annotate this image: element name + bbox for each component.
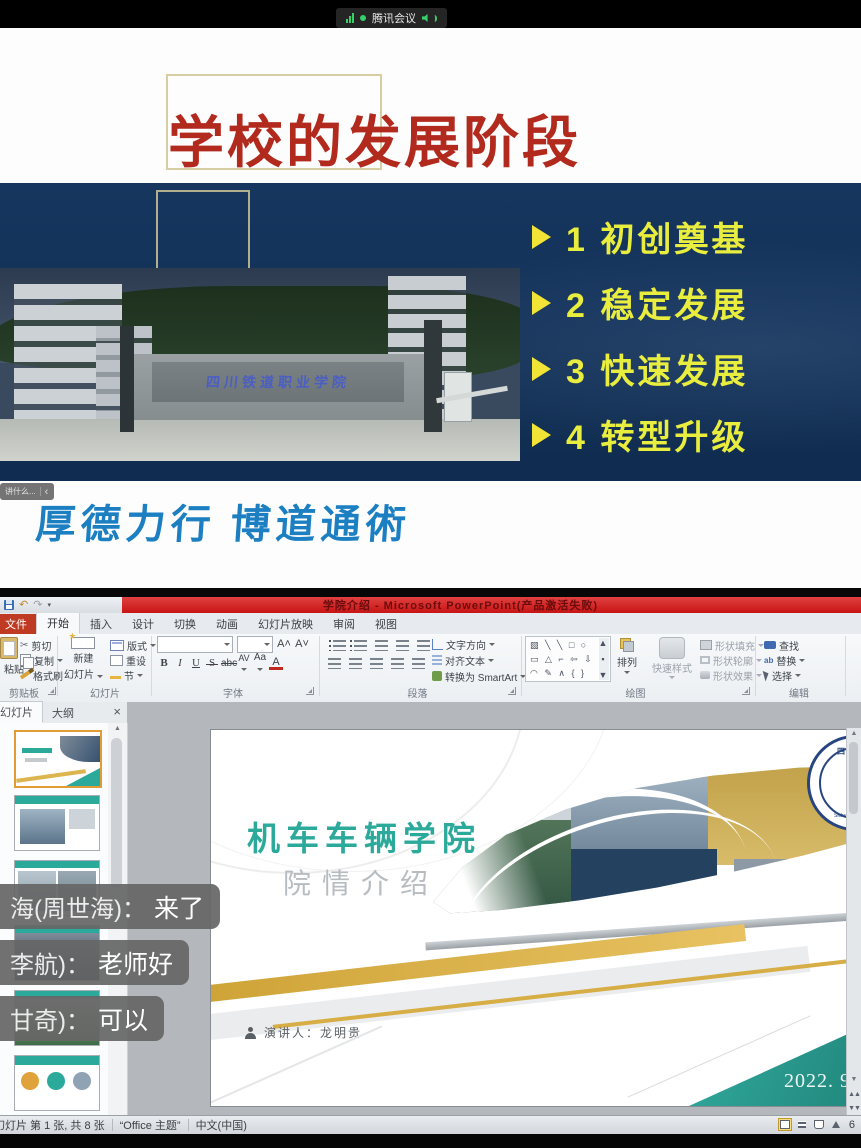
tab-file[interactable]: 文件 — [0, 614, 36, 634]
shrink-font-button[interactable]: A˅ — [295, 638, 309, 650]
line-spacing-button[interactable] — [417, 640, 430, 651]
close-pane-button[interactable]: × — [113, 705, 121, 718]
align-text-button[interactable]: 对齐文本 — [432, 653, 494, 667]
scroll-up-icon[interactable]: ▲ — [108, 725, 127, 732]
campus-gate-photo: 四川铁道职业学院 — [0, 268, 520, 461]
undo-button[interactable]: ↶ — [19, 600, 28, 610]
meeting-app-name: 腾讯会议 — [372, 10, 416, 26]
school-motto: 厚德力行 博道通術 — [34, 492, 413, 550]
group-label-editing: 编辑 — [755, 685, 843, 700]
copy-icon — [20, 654, 31, 666]
scroll-up-icon[interactable]: ▲ — [847, 730, 861, 737]
customize-qat-dropdown[interactable]: ▾ — [47, 601, 51, 609]
shape-effects-icon — [700, 671, 710, 679]
previous-slide-button[interactable]: ▲▲ — [847, 1092, 861, 1097]
shared-slide-title: 学校的发展阶段 — [168, 98, 581, 179]
next-slide-button[interactable]: ▼▼ — [847, 1106, 861, 1111]
shape-fill-icon — [700, 640, 712, 650]
gate-sign: 四川铁道职业学院 — [152, 362, 404, 402]
shapes-gallery-scrollbar[interactable]: ▲▪▼ — [599, 638, 609, 680]
shape-effects-button[interactable]: 形状效果 — [700, 668, 762, 682]
zoom-level[interactable]: 6 — [849, 1119, 855, 1131]
quick-styles-button[interactable]: 快速样式 — [652, 637, 692, 681]
tab-design[interactable]: 设计 — [122, 614, 164, 634]
text-direction-icon — [432, 639, 443, 650]
tab-insert[interactable]: 插入 — [80, 614, 122, 634]
collapsed-caption-badge[interactable]: 讲什么... ‹ — [0, 483, 54, 500]
save-button[interactable] — [4, 600, 14, 610]
window-title-bar[interactable]: 学院介绍 - Microsoft PowerPoint(产品激活失败) — [60, 597, 861, 613]
triangle-bullet-icon — [532, 225, 551, 249]
bullets-button[interactable] — [333, 640, 346, 651]
align-left-button[interactable] — [328, 658, 341, 669]
find-button[interactable]: 查找 — [764, 638, 799, 652]
group-label-font: 字体 — [153, 685, 313, 700]
scroll-down-icon[interactable]: ▼ — [847, 1076, 861, 1083]
chat-message-3: 甘奇)： 可以 — [0, 996, 164, 1041]
group-label-drawing: 绘图 — [523, 685, 748, 700]
grow-font-button[interactable]: A˄ — [277, 638, 291, 650]
align-center-button[interactable] — [349, 658, 362, 669]
text-shadow-button[interactable]: S — [205, 657, 219, 669]
tab-slideshow[interactable]: 幻灯片放映 — [248, 614, 323, 634]
bullet-item: 4 转型升级 — [532, 410, 748, 459]
format-painter-button[interactable]: 格式刷 — [20, 668, 63, 682]
tab-transitions[interactable]: 切换 — [164, 614, 206, 634]
slide-thumbnail-2[interactable] — [14, 795, 100, 851]
increase-indent-button[interactable] — [396, 640, 409, 651]
slide-count-status: 幻灯片 第 1 张, 共 8 张 — [0, 1117, 105, 1133]
slide-canvas[interactable]: 四川铁道 1952 Sichuan Railway C 机车车辆学院 院情介绍 … — [211, 730, 861, 1106]
ribbon-tab-bar: 文件 开始 插入 设计 切换 动画 幻灯片放映 审阅 视图 — [0, 613, 861, 635]
quick-styles-icon — [659, 637, 685, 659]
stage-bullet-list: 1 初创奠基 2 稳定发展 3 快速发展 4 转型升级 — [532, 212, 748, 459]
status-bar: 幻灯片 第 1 张, 共 8 张 “Office 主题” 中文(中国) 6 — [0, 1115, 861, 1134]
italic-button[interactable]: I — [173, 657, 187, 669]
slide-thumbnail-6[interactable] — [14, 1055, 100, 1111]
smartart-button[interactable]: 转换为 SmartArt — [432, 669, 526, 683]
quick-access-toolbar: ↶ ↷ ▾ — [0, 597, 122, 613]
reading-view-button[interactable] — [812, 1118, 826, 1131]
character-spacing-button[interactable]: AV — [237, 653, 251, 673]
bottom-black-strip — [0, 1133, 861, 1148]
slide-title[interactable]: 机车车辆学院 — [247, 812, 481, 860]
screen: 腾讯会议 学校的发展阶段 1 初创奠基 2 稳定发展 3 快速发展 4 转型升级… — [0, 0, 861, 1148]
text-direction-button[interactable]: 文字方向 — [432, 637, 495, 651]
arrange-button[interactable]: 排列 — [617, 638, 637, 680]
window-title: 学院介绍 - Microsoft PowerPoint(产品激活失败) — [323, 597, 598, 613]
shapes-gallery[interactable]: ▧ ╲ ╲ □ ○ ▭ △ ⌐ ⇦ ⇩ ◠ ✎ ∧ { } ▲▪▼ — [525, 636, 611, 682]
tab-slides-pane[interactable]: 幻灯片 — [0, 701, 43, 723]
change-case-button[interactable]: Aa — [253, 652, 267, 674]
normal-view-button[interactable] — [778, 1118, 792, 1131]
section-button[interactable]: 节 — [110, 668, 143, 682]
tab-outline-pane[interactable]: 大纲 — [43, 703, 83, 723]
bullet-item: 3 快速发展 — [532, 344, 748, 393]
reset-icon — [110, 655, 123, 666]
shape-outline-icon — [700, 656, 710, 664]
align-right-button[interactable] — [370, 658, 383, 669]
chevron-left-icon: ‹ — [45, 487, 49, 497]
strikethrough-button[interactable]: abc — [221, 658, 235, 669]
drawing-dialog-launcher[interactable] — [742, 687, 750, 695]
bullet-item: 2 稳定发展 — [532, 278, 748, 327]
left-pane-tabs: 幻灯片 大纲 × — [0, 702, 128, 724]
theme-status: “Office 主题” — [120, 1117, 181, 1133]
new-slide-button[interactable]: 新建 幻灯片 — [64, 637, 103, 681]
view-buttons: 6 — [778, 1118, 855, 1131]
slideshow-view-button[interactable] — [829, 1118, 843, 1131]
columns-button[interactable] — [412, 658, 425, 669]
slide-sorter-view-button[interactable] — [795, 1118, 809, 1131]
cut-button[interactable]: ✂ 剪切 — [20, 638, 51, 652]
layout-button[interactable]: 版式 — [110, 638, 156, 652]
shape-outline-button[interactable]: 形状轮廓 — [700, 653, 762, 667]
font-size-combobox[interactable] — [237, 636, 273, 653]
redo-button[interactable]: ↷ — [33, 600, 42, 610]
triangle-bullet-icon — [532, 357, 551, 381]
section-icon — [110, 676, 121, 679]
copy-button[interactable]: 复制 — [20, 653, 63, 667]
slide-thumbnail-1[interactable] — [14, 730, 102, 788]
slide-subtitle[interactable]: 院情介绍 — [283, 862, 439, 902]
triangle-bullet-icon — [532, 291, 551, 315]
tab-animations[interactable]: 动画 — [206, 614, 248, 634]
scrollbar-thumb[interactable] — [111, 738, 122, 888]
paragraph-dialog-launcher[interactable] — [508, 687, 516, 695]
speaker-icon — [422, 14, 437, 23]
paste-icon — [0, 637, 18, 659]
group-label-clipboard: 剪贴板 — [0, 685, 54, 700]
chat-message-1: 海(周世海)： 来了 — [0, 884, 220, 929]
new-slide-icon — [71, 637, 95, 649]
font-dialog-launcher[interactable] — [306, 687, 314, 695]
arrange-icon — [620, 638, 634, 652]
numbering-button[interactable] — [354, 640, 367, 651]
reset-button[interactable]: 重设 — [110, 653, 146, 667]
replace-icon: ab — [764, 656, 773, 665]
replace-button[interactable]: ab 替换 — [764, 653, 805, 667]
ribbon: 粘贴 ✂ 剪切 复制 格式刷 剪贴板 新建 幻灯片 — [0, 634, 861, 703]
select-button[interactable]: 选择 — [764, 668, 801, 682]
group-label-paragraph: 段落 — [320, 685, 515, 700]
divider — [0, 588, 861, 597]
underline-button[interactable]: U — [189, 657, 203, 669]
shape-fill-button[interactable]: 形状填充 — [700, 638, 764, 652]
bold-button[interactable]: B — [157, 657, 171, 669]
font-color-button[interactable]: A — [269, 657, 283, 670]
language-status[interactable]: 中文(中国) — [196, 1117, 247, 1133]
vertical-scrollbar[interactable]: ▲ ▼ ▲▲ ▼▼ — [846, 728, 861, 1115]
meeting-status-pill[interactable]: 腾讯会议 — [336, 8, 447, 28]
signal-icon — [346, 13, 354, 23]
decor-rectangle-bottom — [156, 190, 250, 276]
tab-review[interactable]: 审阅 — [323, 614, 365, 634]
smartart-icon — [432, 671, 442, 681]
select-icon — [763, 669, 771, 681]
decrease-indent-button[interactable] — [375, 640, 388, 651]
align-text-icon — [432, 655, 442, 665]
font-name-combobox[interactable] — [157, 636, 233, 653]
person-icon — [245, 1027, 256, 1039]
bullet-item: 1 初创奠基 — [532, 212, 748, 261]
justify-button[interactable] — [391, 658, 404, 669]
find-icon — [764, 641, 776, 649]
triangle-bullet-icon — [532, 423, 551, 447]
slide-date: 2022. 9 — [784, 1070, 851, 1093]
chat-message-2: 李航)： 老师好 — [0, 940, 189, 985]
brush-icon — [20, 670, 30, 679]
mic-status-icon — [360, 15, 366, 21]
presenter-line: 演讲人：龙明贵 — [245, 1024, 362, 1041]
powerpoint-window: 学院介绍 - Microsoft PowerPoint(产品激活失败) ↶ ↷ … — [0, 597, 861, 1133]
layout-icon — [110, 640, 124, 651]
scrollbar-thumb[interactable] — [849, 742, 858, 814]
clipboard-dialog-launcher[interactable] — [48, 687, 56, 695]
group-label-slides: 幻灯片 — [60, 685, 150, 700]
tab-view[interactable]: 视图 — [365, 614, 407, 634]
scissors-icon: ✂ — [20, 640, 28, 651]
teal-corner-shape — [689, 1028, 861, 1106]
